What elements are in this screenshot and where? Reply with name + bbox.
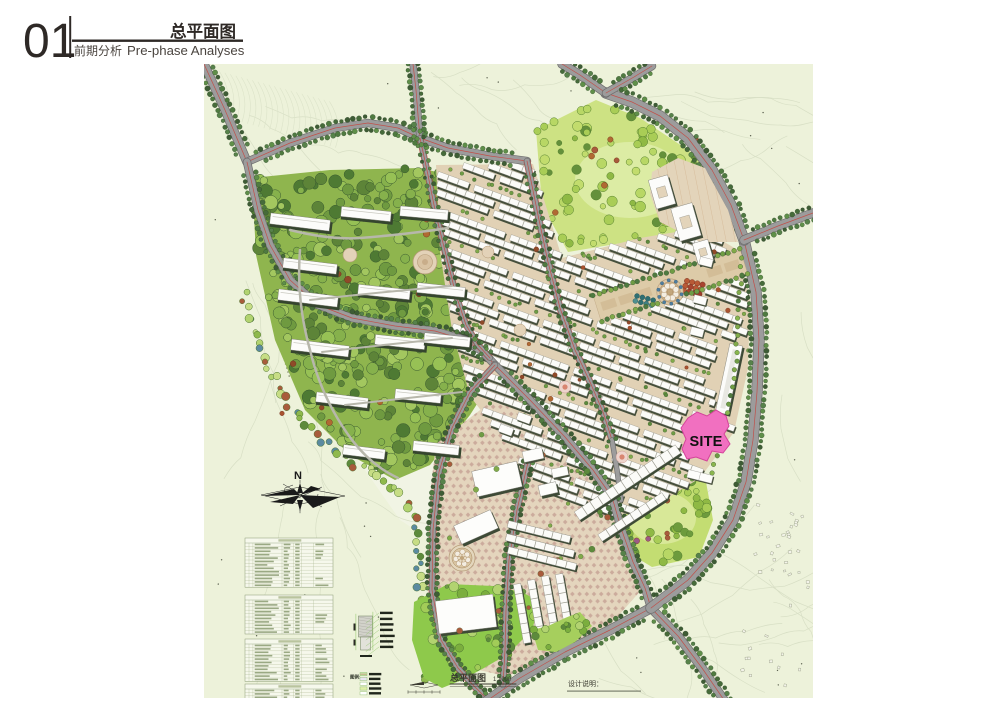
svg-text:前期分析: 前期分析 [74, 43, 122, 58]
svg-text:N: N [294, 470, 302, 482]
svg-text:图例:: 图例: [350, 674, 361, 681]
svg-text:01: 01 [23, 15, 76, 68]
svg-text:1:1000: 1:1000 [493, 677, 512, 683]
svg-text:总平面图: 总平面图 [450, 672, 486, 683]
svg-text:SITE: SITE [689, 434, 722, 450]
svg-text:Pre-phase Analyses: Pre-phase Analyses [127, 43, 245, 58]
svg-text:总平面图: 总平面图 [170, 21, 236, 41]
svg-text:设计说明：: 设计说明： [568, 679, 603, 688]
